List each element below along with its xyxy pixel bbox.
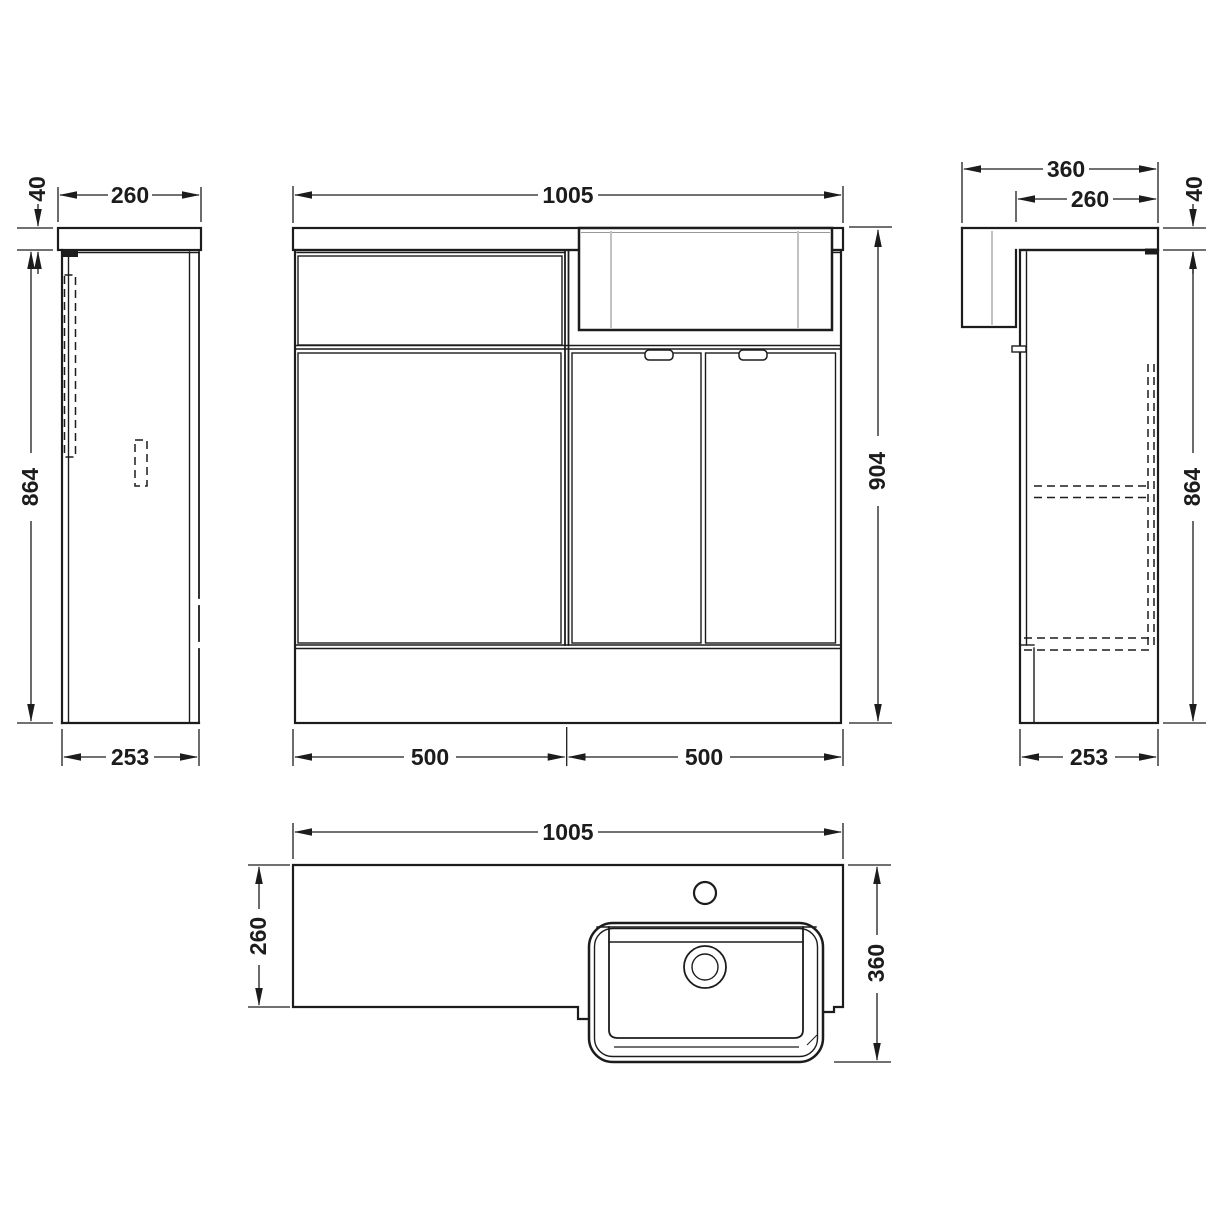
dim-label-left-worktop-thickness: 40 <box>24 176 50 202</box>
dim-front-unit-widths: 500 500 <box>293 727 843 770</box>
basin-outer-rim <box>589 923 823 1062</box>
dim-plan-overall-width: 1005 <box>293 819 843 859</box>
dim-label-plan-overall-depth: 360 <box>863 944 889 982</box>
dim-left-worktop-depth: 260 <box>58 182 201 222</box>
vanity-unit-dimension-drawing: 260 40 864 253 <box>0 0 1224 1224</box>
dim-label-front-overall-height: 904 <box>864 452 890 491</box>
technical-drawing-page: 260 40 864 253 <box>0 0 1224 1224</box>
left-upper-panel <box>298 256 562 345</box>
basin-front <box>579 228 832 330</box>
right-door-left <box>572 353 701 643</box>
section-divider <box>565 250 569 645</box>
hidden-hinge-plate-upper <box>65 275 76 457</box>
hidden-back-panel <box>1148 364 1154 648</box>
dim-label-plan-worktop-depth: 260 <box>245 917 271 955</box>
dim-right-cabinet-depth: 253 <box>1020 729 1158 770</box>
dim-label-left-cabinet-depth: 253 <box>111 744 149 770</box>
basin-profile <box>962 228 1016 327</box>
left-door <box>298 353 561 643</box>
left-side-view: 260 40 864 253 <box>17 176 201 770</box>
right-side-view: 360 260 40 864 253 <box>962 156 1207 770</box>
fixing-bracket-right <box>1145 249 1158 255</box>
hidden-shelf-lower <box>1024 638 1154 650</box>
dim-label-right-worktop-thickness: 40 <box>1181 176 1207 202</box>
dim-left-cabinet-depth: 253 <box>62 729 199 770</box>
cabinet-side-panel <box>62 250 199 723</box>
worktop-profile <box>58 228 201 250</box>
dim-label-right-overall-depth: 360 <box>1047 156 1085 182</box>
dim-label-left-cabinet-height: 864 <box>17 468 43 507</box>
handle-profile <box>1012 346 1026 352</box>
plan-view: 1005 260 360 <box>245 819 891 1062</box>
dim-left-cabinet-height: 864 <box>17 252 53 723</box>
dim-right-overall-depth: 360 <box>962 156 1158 223</box>
dim-label-right-cabinet-depth: 253 <box>1070 744 1108 770</box>
right-door-right <box>706 353 836 643</box>
dim-label-front-right-unit-width: 500 <box>685 744 723 770</box>
dim-right-worktop-thickness: 40 <box>1163 176 1207 274</box>
dim-label-left-worktop-depth: 260 <box>111 182 149 208</box>
dim-right-cabinet-height: 864 <box>1163 252 1206 723</box>
dim-label-plan-overall-width: 1005 <box>542 819 593 845</box>
dim-label-front-overall-width: 1005 <box>542 182 593 208</box>
tap-hole <box>694 882 716 904</box>
door-handle-left <box>645 350 673 360</box>
dim-label-right-worktop-depth: 260 <box>1071 186 1109 212</box>
basin-plan <box>589 923 823 1062</box>
dim-plan-worktop-depth: 260 <box>245 865 290 1007</box>
dim-left-worktop-thickness: 40 <box>17 176 53 274</box>
dim-label-front-left-unit-width: 500 <box>411 744 449 770</box>
hidden-hinge-plate-mid <box>135 440 147 486</box>
dim-front-overall-width: 1005 <box>293 182 843 223</box>
front-view: 1005 904 500 500 <box>293 182 892 770</box>
dim-front-overall-height: 904 <box>849 227 892 723</box>
dim-label-right-cabinet-height: 864 <box>1179 468 1205 507</box>
hidden-shelf-upper <box>1034 486 1148 498</box>
plinth-front <box>295 645 841 649</box>
dim-right-worktop-depth: 260 <box>1016 186 1156 222</box>
door-handle-right <box>739 350 767 360</box>
